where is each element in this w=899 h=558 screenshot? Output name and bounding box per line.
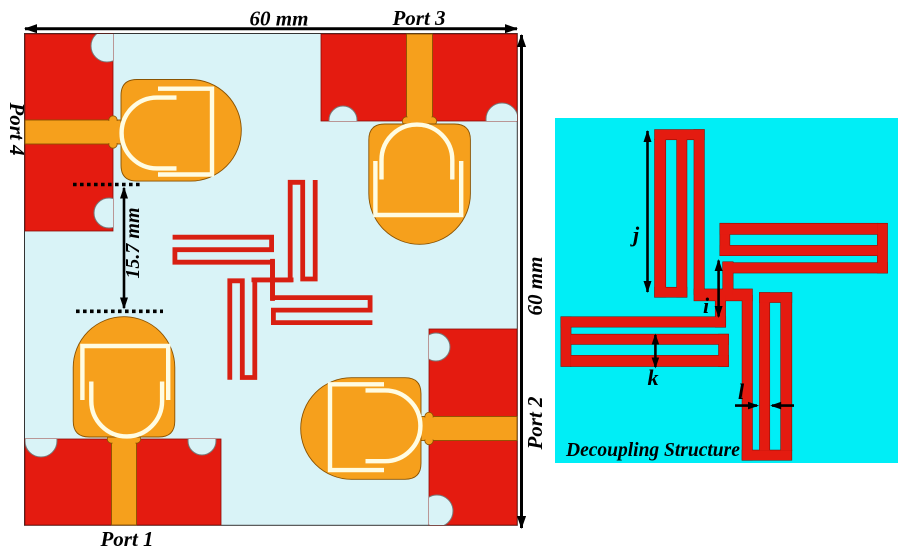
- svg-text:Port 3: Port 3: [391, 6, 445, 30]
- svg-text:15.7 mm: 15.7 mm: [122, 207, 144, 278]
- svg-text:60 mm: 60 mm: [523, 257, 547, 316]
- svg-text:Decoupling Structure: Decoupling Structure: [565, 440, 740, 461]
- svg-text:60 mm: 60 mm: [250, 7, 309, 31]
- svg-text:Port 1: Port 1: [99, 527, 153, 551]
- svg-text:k: k: [648, 365, 659, 390]
- svg-text:l: l: [738, 379, 745, 404]
- svg-text:Port 2: Port 2: [523, 396, 547, 451]
- svg-text:Port 4: Port 4: [5, 101, 29, 155]
- svg-text:i: i: [703, 293, 710, 318]
